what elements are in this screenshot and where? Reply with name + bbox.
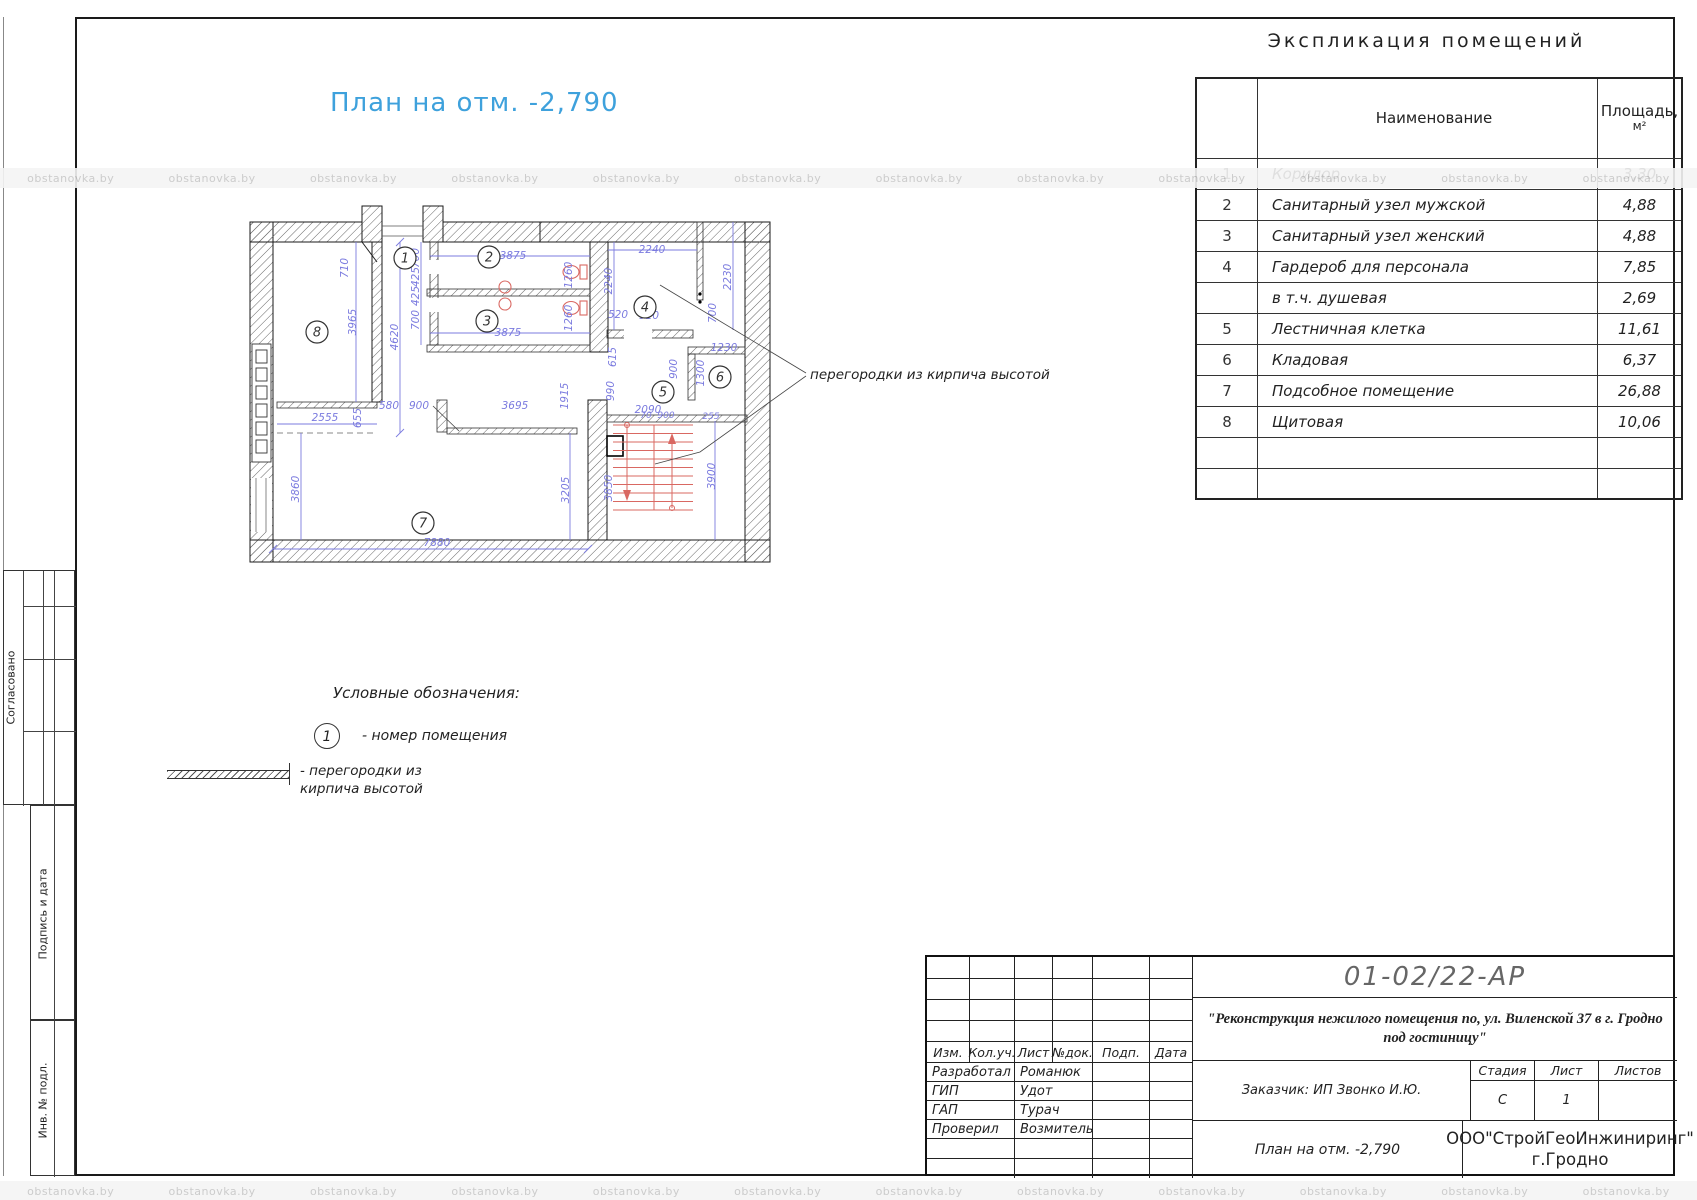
podpis-label: Подпись и дата [37, 870, 50, 960]
floor-plan-svg: 3875 3875 2240 520 910 1230 2090 2555 58… [235, 185, 1055, 575]
tb-stage-value: С [1470, 1080, 1534, 1120]
table-row: 2Санитарный узел мужской4,88 [1196, 189, 1682, 220]
table-header-row: Наименование Площадь, м² [1196, 78, 1682, 158]
project-name: "Реконструкция нежилого помещения по, ул… [1193, 1010, 1677, 1048]
partition-legend-icon [167, 770, 289, 779]
watermark-band-top: obstanovka.byobstanovka.byobstanovka.byo… [0, 168, 1697, 188]
legend-title: Условные обозначения: [333, 684, 520, 702]
tb-name: Возмитель [1014, 1119, 1092, 1138]
svg-text:1: 1 [401, 252, 409, 267]
explication-title: Экспликация помещений [1195, 30, 1658, 52]
svg-text:700: 700 [410, 310, 422, 330]
header-name-cell: Наименование [1258, 78, 1598, 158]
legend-item2-label: - перегородки из кирпича высотой [300, 763, 478, 798]
tb-cell [927, 957, 969, 978]
table-row: 4Гардероб для персонала7,85 [1196, 251, 1682, 282]
room-number-badge: 2 [478, 246, 500, 268]
svg-text:615: 615 [607, 347, 619, 367]
room-number-badge: 5 [652, 381, 674, 403]
svg-text:425: 425 [410, 286, 422, 306]
svg-text:425: 425 [410, 267, 422, 287]
svg-text:7880: 7880 [424, 537, 451, 549]
svg-text:655: 655 [352, 408, 364, 428]
tb-col-izm: Изм. [927, 1041, 969, 1062]
svg-text:1260: 1260 [563, 261, 575, 288]
svg-text:4: 4 [641, 301, 649, 316]
window [251, 478, 272, 532]
stamp-podpis: Подпись и дата [30, 805, 75, 1020]
svg-text:1260: 1260 [563, 304, 575, 331]
stair-pier [607, 436, 623, 456]
staircase [613, 423, 693, 511]
tb-sheets-value [1598, 1080, 1677, 1120]
svg-text:900: 900 [668, 359, 680, 379]
tb-role: Разработал [927, 1062, 1014, 1081]
svg-text:1230: 1230 [711, 342, 738, 354]
svg-text:710: 710 [339, 258, 351, 278]
svg-text:3205: 3205 [560, 476, 572, 503]
title-block: Изм. Кол.уч. Лист №док. Подп. Дата Разра… [925, 955, 1675, 1176]
tb-name: Романюк [1014, 1062, 1092, 1081]
svg-text:3875: 3875 [500, 250, 527, 262]
tb-client-cell: Заказчик: ИП Звонко И.Ю. [1192, 1060, 1470, 1120]
svg-text:2230: 2230 [722, 263, 734, 290]
room-number-badge: 6 [709, 366, 731, 388]
svg-text:3875: 3875 [495, 327, 522, 339]
document-code: 01-02/22-АР [1344, 962, 1526, 992]
table-row-empty [1196, 437, 1682, 468]
svg-text:2: 2 [485, 251, 493, 266]
room-number-badge: 7 [412, 512, 434, 534]
tb-col-list: Лист [1014, 1041, 1052, 1062]
tb-role: Проверил [927, 1119, 1014, 1138]
floor-plan: 3875 3875 2240 520 910 1230 2090 2555 58… [235, 185, 1055, 575]
room-number-badge: 8 [306, 321, 328, 343]
svg-text:900: 900 [409, 400, 429, 412]
client-name: Заказчик: ИП Звонко И.Ю. [1242, 1083, 1422, 1098]
svg-text:2240: 2240 [639, 244, 666, 256]
room-number-legend-icon: 1 [314, 723, 340, 749]
header-num-cell [1196, 78, 1258, 158]
tb-doc-code-cell: 01-02/22-АР [1192, 957, 1677, 997]
plan-title: План на отм. -2,790 [330, 88, 619, 118]
tb-col-kol: Кол.уч. [969, 1041, 1014, 1062]
watermark-text: obstanovka.by [27, 172, 114, 185]
tb-sheet-head: Лист [1534, 1060, 1598, 1080]
company-city: г.Гродно [1446, 1150, 1694, 1171]
svg-text:580: 580 [379, 400, 399, 412]
table-row: в т.ч. душевая2,69 [1196, 282, 1682, 313]
shaft-panel [252, 344, 271, 462]
tb-col-doc: №док. [1052, 1041, 1092, 1062]
table-row: 6Кладовая6,37 [1196, 344, 1682, 375]
svg-text:6: 6 [716, 371, 724, 386]
partition-legend-tick [289, 763, 290, 785]
svg-text:3: 3 [483, 315, 491, 330]
svg-text:70: 70 [640, 411, 652, 421]
stamp-soglasovano: Согласовано [3, 570, 75, 805]
soglasovano-label: Согласовано [5, 655, 18, 725]
table-row-empty [1196, 468, 1682, 499]
svg-text:3965: 3965 [347, 308, 359, 335]
header-area-cell: Площадь, м² [1598, 78, 1683, 158]
svg-text:3695: 3695 [502, 400, 529, 412]
tb-sheet-value: 1 [1534, 1080, 1598, 1120]
tb-role: ГАП [927, 1100, 1014, 1119]
table-row: 5Лестничная клетка11,61 [1196, 313, 1682, 344]
svg-text:7: 7 [419, 517, 428, 532]
svg-text:1300: 1300 [695, 359, 707, 386]
svg-text:3850: 3850 [603, 474, 615, 501]
tb-role: ГИП [927, 1081, 1014, 1100]
svg-text:3860: 3860 [290, 475, 302, 502]
svg-text:990: 990 [605, 381, 617, 401]
table-row: 7Подсобное помещение26,88 [1196, 375, 1682, 406]
svg-text:700: 700 [707, 303, 719, 323]
annotation-text: перегородки из кирпича высотой [810, 367, 1050, 383]
tb-sheet-title: План на отм. -2,790 [1192, 1120, 1462, 1178]
svg-text:900: 900 [657, 411, 674, 421]
explication-table: Наименование Площадь, м² 1Коридор3,30 2С… [1195, 77, 1683, 500]
tb-col-podp: Подп. [1092, 1041, 1149, 1062]
tb-name: Удот [1014, 1081, 1092, 1100]
svg-text:255: 255 [702, 412, 719, 422]
stamp-inv: Инв. № подл. [30, 1020, 75, 1176]
room-number-badge: 4 [634, 296, 656, 318]
svg-text:8: 8 [313, 326, 321, 341]
table-row: 8Щитовая10,06 [1196, 406, 1682, 437]
svg-text:3900: 3900 [706, 462, 718, 489]
watermark-band-bottom: obstanovka.byobstanovka.byobstanovka.byo… [0, 1181, 1697, 1200]
table-row: 3Санитарный узел женский4,88 [1196, 220, 1682, 251]
tb-sheets-head: Листов [1598, 1060, 1677, 1080]
svg-text:520: 520 [608, 309, 628, 321]
company-name: ООО"СтройГеоИнжиниринг" [1446, 1129, 1694, 1150]
tb-col-data: Дата [1149, 1041, 1192, 1062]
room-number-badge: 3 [476, 310, 498, 332]
legend-item1-label: - номер помещения [362, 728, 507, 744]
svg-text:1915: 1915 [559, 382, 571, 409]
inv-label: Инв. № подл. [37, 1061, 50, 1141]
tb-project-cell: "Реконструкция нежилого помещения по, ул… [1192, 997, 1677, 1060]
room-number-badge: 1 [394, 247, 416, 269]
svg-text:2240: 2240 [603, 267, 615, 294]
svg-text:2555: 2555 [312, 412, 339, 424]
tb-stage-head: Стадия [1470, 1060, 1534, 1080]
svg-text:4620: 4620 [389, 323, 401, 350]
tb-company-cell: ООО"СтройГеоИнжиниринг" г.Гродно [1462, 1120, 1677, 1178]
svg-text:5: 5 [659, 386, 667, 401]
tb-name: Турач [1014, 1100, 1092, 1119]
